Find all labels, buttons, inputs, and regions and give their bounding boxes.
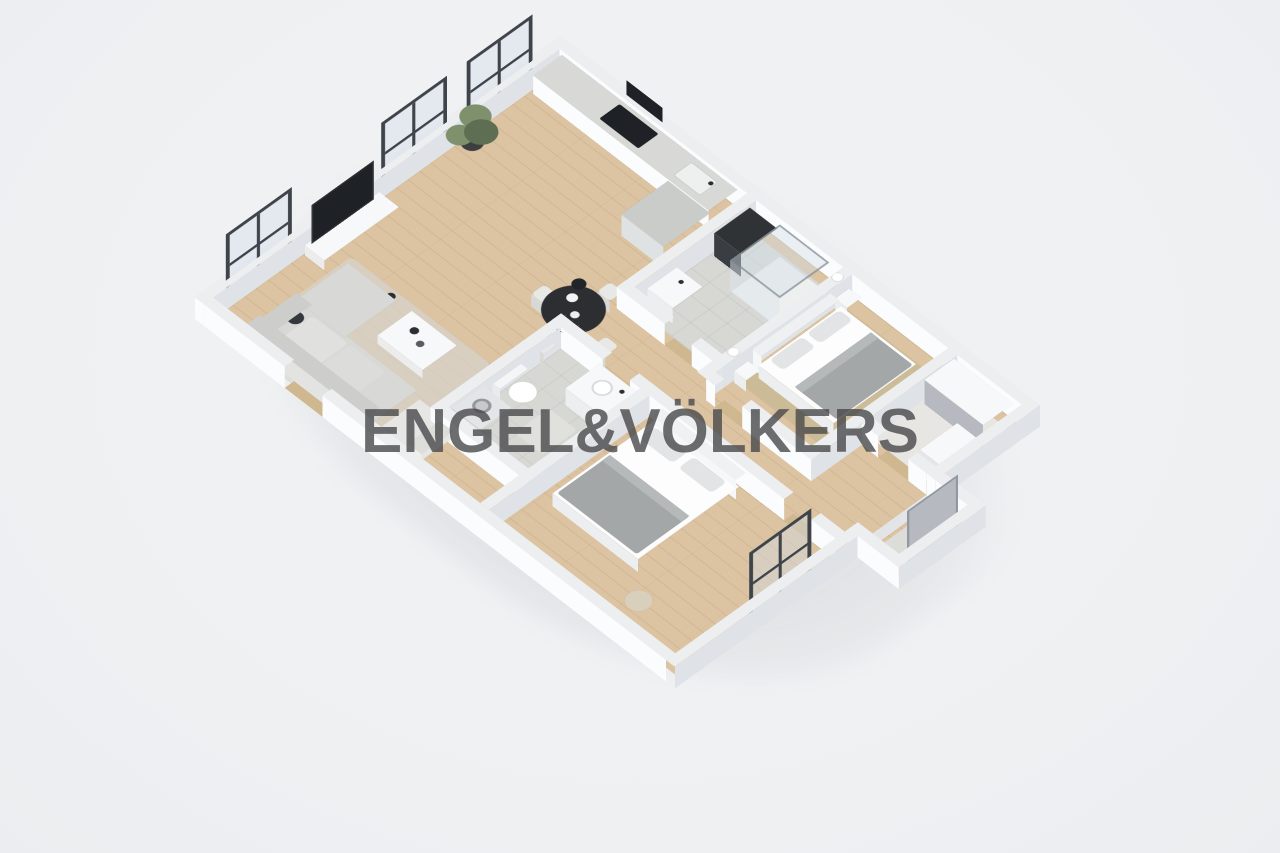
- watermark-logo: ENGEL&VÖLKERS: [361, 396, 919, 467]
- floorplan-3d-render: [195, 56, 1085, 722]
- render-backdrop: ENGEL&VÖLKERS: [0, 0, 1280, 853]
